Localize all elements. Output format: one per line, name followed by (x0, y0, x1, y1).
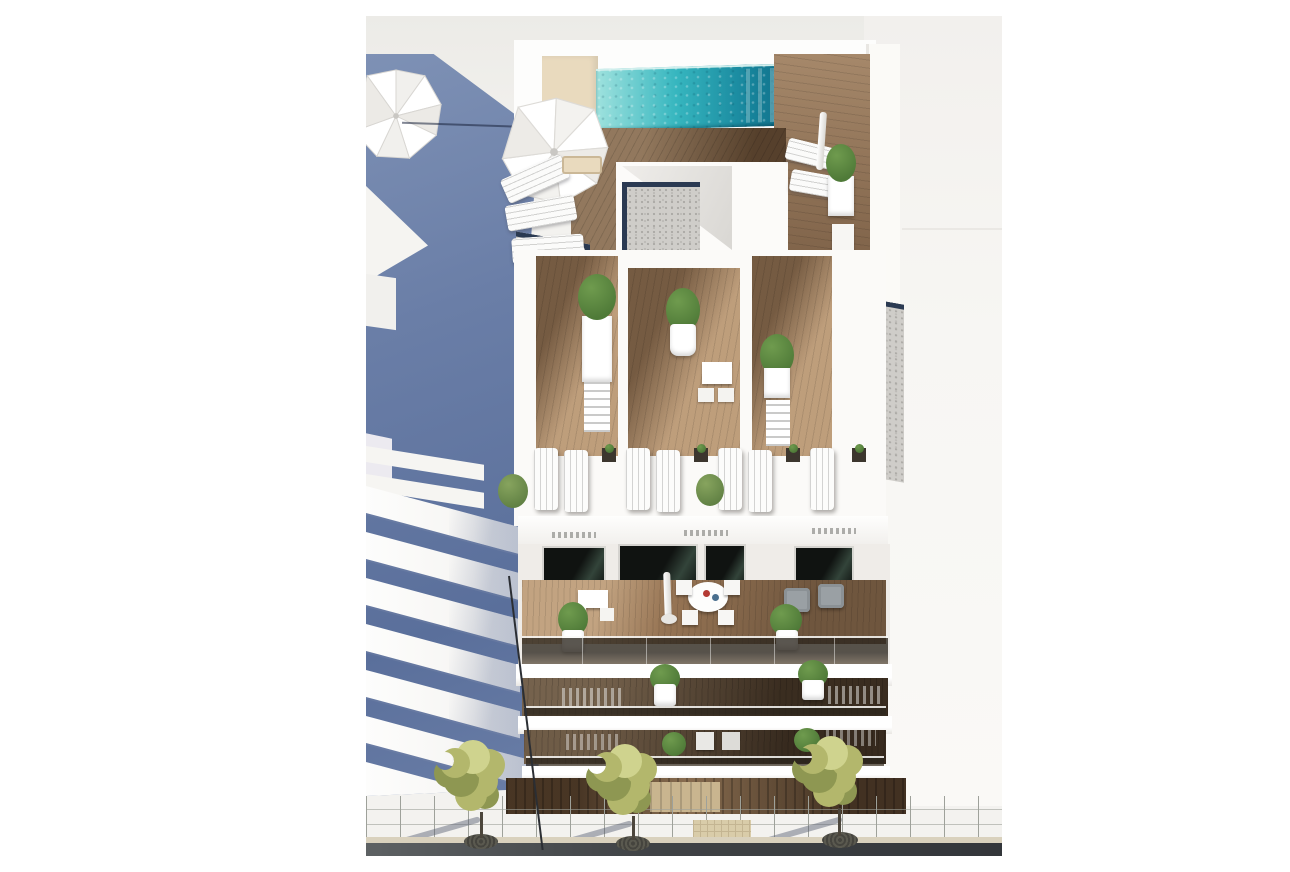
side-table (852, 448, 866, 462)
street-tree (462, 778, 478, 794)
balcony-chair (600, 608, 614, 621)
potted-plant (855, 444, 864, 453)
vent-grille (812, 528, 856, 534)
plant-pot (670, 324, 696, 356)
dining-chair (676, 580, 692, 595)
street-tree (820, 774, 836, 790)
potted-plant (578, 274, 616, 320)
right-facade-edge (902, 228, 1002, 230)
sun-lounger (656, 450, 680, 512)
tree-trunk (838, 808, 841, 836)
lounger-pair (810, 448, 850, 520)
architectural-render-photo: High-angle architectural rendering of a … (40, 16, 1290, 856)
terrace-shrub (498, 474, 528, 508)
street-tree (614, 782, 630, 798)
vent-grille (552, 532, 596, 538)
balcony-chair (696, 732, 714, 750)
plant-stand (584, 382, 610, 432)
side-table (694, 448, 708, 462)
armchair (818, 584, 844, 608)
dining-chair (718, 610, 734, 625)
glass-balustrade (522, 636, 888, 666)
terrace-shrub (696, 474, 724, 506)
tree-trunk (480, 812, 483, 838)
parasol-base (661, 614, 677, 624)
sunlit-balcony-corner (366, 274, 396, 330)
plant-pot (802, 680, 824, 700)
potted-plant (697, 444, 706, 453)
balcony-furniture (828, 686, 882, 704)
potted-plant (662, 732, 686, 756)
sun-lounger (564, 450, 588, 512)
bistro-chair (698, 388, 714, 402)
sunlit-awning (366, 186, 428, 282)
sun-lounger (748, 450, 772, 512)
plant-stand (766, 400, 790, 446)
bistro-table (702, 362, 732, 384)
round-dining-table (688, 582, 728, 612)
balcony-chair (722, 732, 740, 750)
road (366, 843, 1002, 856)
balcony-furniture (562, 688, 622, 706)
potted-plant (605, 444, 614, 453)
tableware-red (703, 590, 710, 597)
balcony-furniture (566, 734, 620, 750)
planter-box (828, 176, 854, 216)
vent-grille (684, 530, 728, 536)
dining-chair (724, 580, 740, 595)
lounger-pair (626, 448, 692, 520)
tree-trunk (632, 816, 635, 840)
sun-lounger (810, 448, 834, 510)
street-pavement (366, 796, 1002, 840)
sun-lounger (534, 448, 558, 510)
plant-pot (654, 684, 676, 706)
sun-lounger (626, 448, 650, 510)
side-table (602, 448, 616, 462)
bistro-chair (718, 388, 734, 402)
potted-plant (826, 144, 856, 182)
parasol-icon (366, 68, 444, 164)
lounge-cushion (562, 156, 602, 174)
sun-lounger (718, 448, 742, 510)
potted-plant (789, 444, 798, 453)
dining-chair (682, 610, 698, 625)
planter-box (582, 316, 612, 382)
plant-pot (764, 368, 790, 398)
photo-area (366, 16, 1002, 856)
lounger-pair (534, 448, 600, 520)
lounger-pair (718, 448, 784, 520)
side-table (786, 448, 800, 462)
balcony-furniture (826, 730, 876, 746)
tableware-blue (712, 594, 719, 601)
terrace-chair (832, 224, 854, 250)
